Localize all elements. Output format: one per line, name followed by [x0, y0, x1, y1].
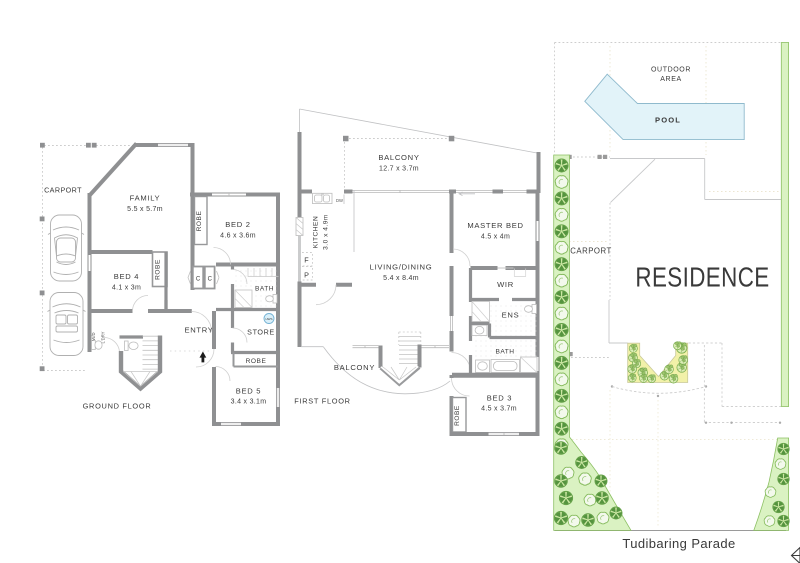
svg-text:4.5 x 3.7m: 4.5 x 3.7m	[481, 406, 517, 413]
svg-text:ROBE: ROBE	[155, 259, 162, 280]
svg-text:KITCHEN: KITCHEN	[313, 216, 320, 248]
svg-text:BED 3: BED 3	[487, 394, 512, 403]
svg-text:LIVING/DINING: LIVING/DINING	[370, 263, 433, 272]
svg-text:4.6 x 3.6m: 4.6 x 3.6m	[220, 233, 256, 240]
svg-text:OUTDOOR: OUTDOOR	[651, 67, 691, 74]
svg-text:BED 2: BED 2	[225, 220, 250, 229]
svg-text:MASTER BED: MASTER BED	[467, 221, 523, 230]
svg-text:CARPORT: CARPORT	[570, 247, 611, 256]
svg-text:ENTRY: ENTRY	[184, 326, 213, 335]
svg-text:C: C	[208, 277, 213, 283]
svg-text:BED 4: BED 4	[114, 272, 139, 281]
svg-text:FAMILY: FAMILY	[130, 194, 161, 203]
svg-text:BATH: BATH	[495, 349, 514, 356]
svg-text:BALCONY: BALCONY	[334, 363, 375, 372]
svg-text:C: C	[196, 277, 201, 283]
svg-text:FIRST FLOOR: FIRST FLOOR	[294, 397, 350, 406]
svg-text:W/D: W/D	[91, 332, 96, 340]
svg-text:5.5 x 5.7m: 5.5 x 5.7m	[127, 206, 163, 213]
svg-text:ROBE: ROBE	[196, 211, 203, 232]
svg-text:POOL: POOL	[655, 116, 681, 125]
svg-text:3.0 x 4.9m: 3.0 x 4.9m	[323, 214, 330, 250]
svg-text:4.5 x 4m: 4.5 x 4m	[481, 234, 510, 241]
svg-text:HWS: HWS	[266, 317, 273, 321]
svg-text:Tudibaring Parade: Tudibaring Parade	[622, 536, 735, 551]
svg-text:12.7 x 3.7m: 12.7 x 3.7m	[379, 166, 419, 173]
svg-text:BED 5: BED 5	[236, 387, 261, 396]
svg-text:GROUND FLOOR: GROUND FLOOR	[83, 402, 152, 411]
svg-text:RESIDENCE: RESIDENCE	[635, 262, 769, 293]
svg-text:ENS: ENS	[502, 311, 520, 320]
svg-text:AREA: AREA	[660, 76, 681, 83]
svg-text:STORE: STORE	[247, 328, 275, 337]
svg-text:4.1 x 3m: 4.1 x 3m	[112, 285, 141, 292]
svg-text:BALCONY: BALCONY	[378, 153, 419, 162]
svg-text:WIR: WIR	[497, 280, 514, 289]
svg-text:CARPORT: CARPORT	[44, 186, 82, 195]
svg-text:ROBE: ROBE	[454, 405, 461, 426]
svg-text:3.4 x 3.1m: 3.4 x 3.1m	[231, 399, 267, 406]
svg-text:P: P	[304, 271, 309, 280]
svg-text:ROBE: ROBE	[246, 358, 267, 365]
svg-text:BATH: BATH	[255, 286, 274, 293]
svg-text:DW: DW	[336, 198, 343, 203]
svg-text:F: F	[304, 256, 309, 265]
svg-text:5.4 x 8.4m: 5.4 x 8.4m	[383, 275, 419, 282]
